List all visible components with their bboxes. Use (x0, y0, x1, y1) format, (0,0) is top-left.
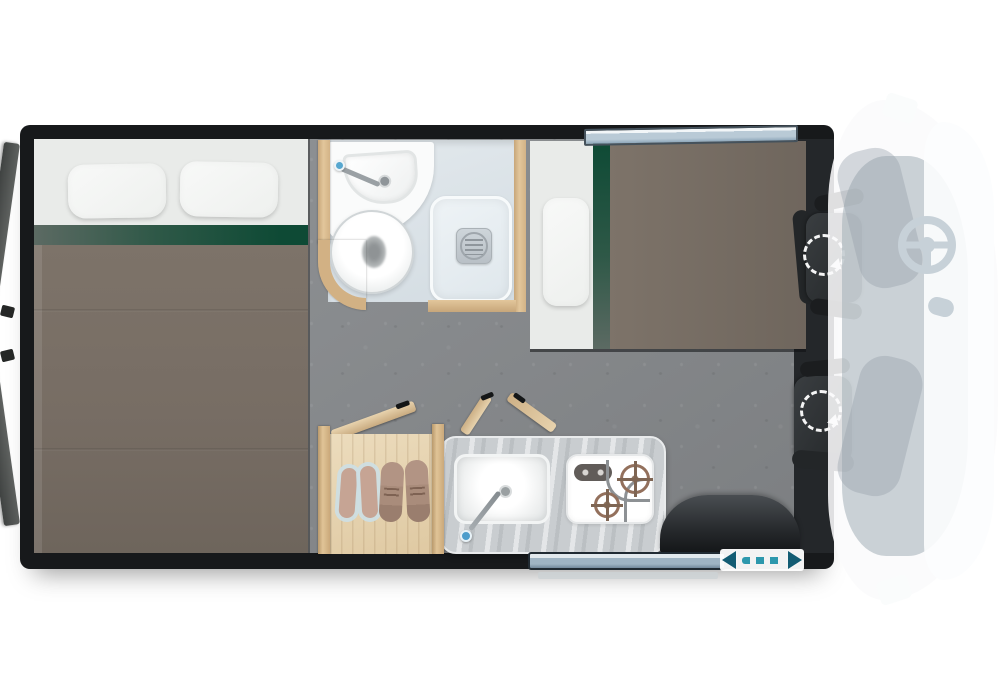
basin-drain (380, 176, 390, 186)
wardrobe-side-rail (318, 426, 330, 554)
two-burner-hob (566, 454, 654, 524)
pillow (180, 161, 279, 218)
rear-door-panel-bottom (0, 350, 20, 527)
shoe-laces (384, 488, 400, 500)
shower-tray (430, 196, 512, 302)
bathroom-wall-right (514, 140, 526, 312)
rear-door-handle-top (0, 305, 15, 319)
arrow-right-icon (788, 551, 802, 569)
wet-bathroom (318, 140, 528, 312)
basin-faucet-head (334, 160, 345, 171)
arrow-left-icon (722, 551, 736, 569)
bathroom-wall-bottom (428, 300, 516, 312)
kitchen-sink (454, 454, 550, 524)
slipper (360, 466, 379, 519)
slide-track-dashes (742, 557, 782, 564)
pillow (543, 198, 589, 306)
wardrobe-shoe-storage (318, 424, 446, 554)
cab-hood-ghost (924, 122, 994, 580)
entry-step (538, 572, 718, 579)
pillow (68, 163, 167, 219)
shoe-laces (410, 487, 426, 499)
rear-double-bed (34, 139, 310, 553)
rear-door-handle-bottom (0, 349, 15, 363)
bed-accent-stripe (593, 141, 610, 349)
sliding-door-direction-indicator (720, 549, 804, 571)
front-single-bed (530, 141, 806, 352)
bed-blanket (610, 141, 806, 349)
bathroom-wall-left (318, 140, 330, 244)
sink-drain (501, 487, 510, 496)
rear-door-panel-top (0, 142, 20, 319)
blanket-fold (34, 448, 308, 451)
hob-burner-small (594, 492, 620, 518)
sliding-entry-door (528, 552, 726, 570)
blanket-highlight (34, 245, 42, 553)
blanket-fold (34, 309, 308, 312)
wardrobe-side-rail (432, 424, 444, 554)
bed-accent-stripe (34, 225, 308, 245)
washbasin (342, 149, 419, 206)
campervan-floorplan (0, 0, 1000, 700)
shoe (404, 459, 430, 522)
bathroom-wall-curved (318, 240, 366, 310)
steering-wheel-icon (898, 216, 956, 274)
wheel-arch (660, 495, 800, 554)
hob-burner-large (620, 464, 650, 494)
kitchen-faucet-head (460, 530, 472, 542)
shoe (378, 461, 404, 522)
kitchenette (440, 436, 666, 554)
shower-drain (456, 228, 492, 264)
bed-blanket (34, 245, 308, 553)
